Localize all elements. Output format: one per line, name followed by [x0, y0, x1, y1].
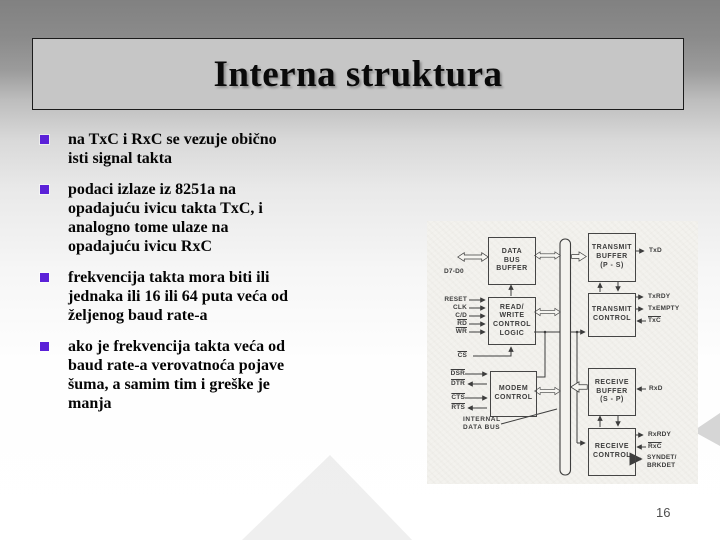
bullet-text: frekvencija takta mora biti ili jednaka … — [68, 268, 288, 325]
signal-label-txc: TxC — [648, 317, 661, 325]
bullet-text: na TxC i RxC se vezuje obično isti signa… — [68, 130, 277, 168]
block-modem-control: MODEM CONTROL — [490, 371, 537, 417]
list-item: podaci izlaze iz 8251a na opadajuću ivic… — [40, 180, 370, 256]
bullet-square-icon — [40, 135, 49, 144]
signal-label-wr: WR — [437, 328, 467, 336]
signal-label-txempty: TxEMPTY — [648, 305, 679, 313]
signal-label-rxrdy: RxRDY — [648, 431, 671, 439]
signal-label-d7-d0: D7-D0 — [444, 268, 464, 276]
signal-label-dsr: DSR — [437, 370, 465, 378]
signal-label-txrdy: TxRDY — [648, 293, 670, 301]
block-transmit-control: TRANSMIT CONTROL — [588, 293, 636, 337]
signal-label-dtr: DTR — [437, 380, 465, 388]
signal-label-txd: TxD — [649, 247, 662, 255]
signal-label-rd: RD — [437, 320, 467, 328]
block-data-bus-buffer: DATA BUS BUFFER — [488, 237, 536, 285]
list-item: na TxC i RxC se vezuje obično isti signa… — [40, 130, 370, 168]
block-receive-control: RECEIVE CONTROL — [588, 428, 636, 476]
block-transmit-buffer: TRANSMIT BUFFER (P - S) — [588, 233, 636, 282]
signal-label-cs: CS — [451, 352, 467, 360]
bullet-text: podaci izlaze iz 8251a na opadajuću ivic… — [68, 180, 263, 256]
page-number: 16 — [656, 505, 670, 520]
signal-label-rts: RTS — [437, 404, 465, 412]
signal-label-clk: CLK — [437, 304, 467, 312]
title-box: Interna struktura — [32, 38, 684, 110]
page-title: Interna struktura — [213, 53, 502, 96]
bullet-square-icon — [40, 342, 49, 351]
bullet-list: na TxC i RxC se vezuje obično isti signa… — [40, 130, 370, 413]
slide: Interna struktura na TxC i RxC se vezuje… — [0, 0, 720, 540]
signal-label-rxd: RxD — [649, 385, 663, 393]
signal-label-c-d: C/D — [437, 312, 467, 320]
block-read-write-control-logic: READ/ WRITE CONTROL LOGIC — [488, 297, 536, 345]
list-item: ako je frekvencija takta veća od baud ra… — [40, 337, 370, 413]
internal-data-bus-label: INTERNAL DATA BUS — [463, 416, 501, 432]
list-item: frekvencija takta mora biti ili jednaka … — [40, 268, 370, 325]
block-diagram-8251: DATA BUS BUFFER TRANSMIT BUFFER (P - S) … — [427, 221, 698, 484]
signal-label-rxc: RxC — [648, 443, 662, 451]
bullet-square-icon — [40, 273, 49, 282]
signal-label-syndet-brkdet: SYNDET/ BRKDET — [647, 454, 677, 470]
signal-label-cts: CTS — [437, 394, 465, 402]
block-receive-buffer: RECEIVE BUFFER (S - P) — [588, 368, 636, 416]
signal-label-reset: RESET — [437, 296, 467, 304]
bullet-square-icon — [40, 185, 49, 194]
bullet-text: ako je frekvencija takta veća od baud ra… — [68, 337, 285, 413]
